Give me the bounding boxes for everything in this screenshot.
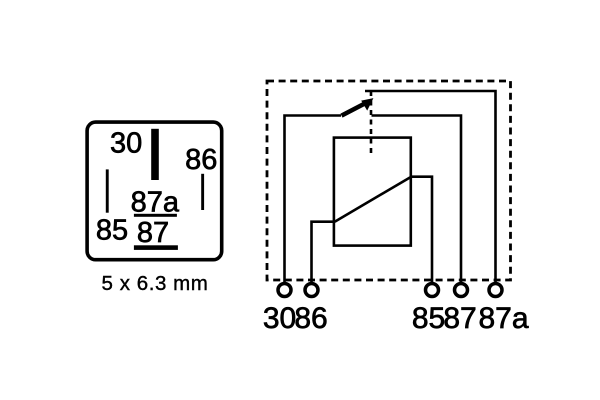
svg-text:86: 86 — [294, 302, 327, 335]
svg-text:87: 87 — [137, 217, 169, 249]
svg-text:30: 30 — [263, 302, 296, 335]
svg-text:87: 87 — [443, 302, 476, 335]
svg-text:30: 30 — [110, 128, 142, 160]
svg-text:86: 86 — [185, 144, 217, 176]
svg-text:85: 85 — [412, 302, 445, 335]
svg-text:5 x 6.3 mm: 5 x 6.3 mm — [102, 272, 209, 295]
svg-text:87a: 87a — [478, 302, 528, 335]
svg-text:85: 85 — [96, 215, 128, 247]
svg-text:87a: 87a — [131, 187, 180, 219]
